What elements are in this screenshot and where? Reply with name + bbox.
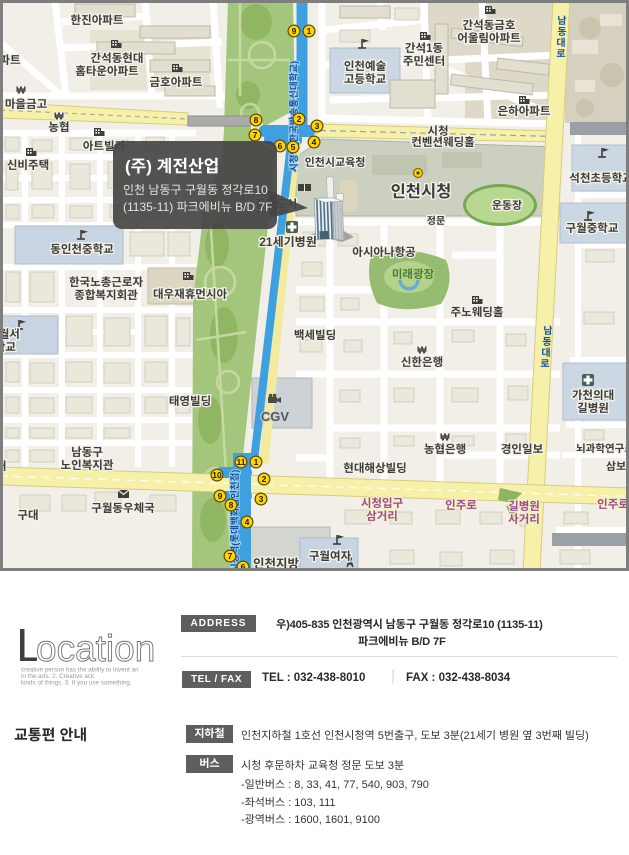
svg-text:9: 9: [292, 26, 297, 36]
svg-text:남동구: 남동구: [71, 446, 103, 459]
svg-text:2: 2: [297, 114, 302, 124]
svg-text:현대해상빌딩: 현대해상빌딩: [343, 462, 406, 475]
svg-text:1: 1: [254, 457, 259, 467]
svg-text:아시아나항공: 아시아나항공: [352, 246, 416, 259]
svg-text:1: 1: [307, 26, 312, 36]
svg-text:8: 8: [254, 115, 259, 125]
svg-text:미래광장: 미래광장: [392, 268, 435, 281]
svg-text:컨벤션웨딩홀: 컨벤션웨딩홀: [411, 136, 475, 149]
svg-text:대: 대: [556, 37, 565, 49]
svg-text:어울림아파트: 어울림아파트: [457, 32, 521, 45]
svg-text:신비주택: 신비주택: [7, 159, 49, 172]
svg-text:로: 로: [540, 359, 549, 370]
svg-text:대우재휴먼시아: 대우재휴먼시아: [153, 288, 227, 301]
svg-text:삼보: 삼보: [606, 460, 626, 473]
svg-text:인천예술: 인천예술: [344, 60, 387, 73]
svg-text:동인천중학교: 동인천중학교: [50, 243, 114, 256]
svg-text:길병원: 길병원: [577, 402, 609, 415]
svg-text:9: 9: [218, 491, 223, 501]
svg-text:4: 4: [245, 517, 250, 527]
svg-text:10: 10: [212, 470, 222, 480]
svg-text:삼거리: 삼거리: [366, 510, 398, 523]
svg-text:(1135-11) 파크에비뉴 B/D 7F: (1135-11) 파크에비뉴 B/D 7F: [123, 200, 272, 214]
svg-text:고등학교: 고등학교: [344, 73, 387, 86]
svg-text:주노웨딩홀: 주노웨딩홀: [451, 306, 504, 319]
svg-text:7: 7: [228, 551, 233, 561]
svg-text:11: 11: [237, 457, 246, 467]
svg-text:정문: 정문: [427, 215, 445, 227]
svg-text:간석동금호: 간석동금호: [463, 19, 516, 32]
svg-text:인주로: 인주로: [445, 499, 477, 512]
svg-text:ocation: ocation: [36, 628, 155, 669]
svg-text:간석1동: 간석1동: [405, 42, 444, 55]
svg-text:간석동현대: 간석동현대: [91, 52, 144, 65]
svg-text:한국노총근로자: 한국노총근로자: [69, 276, 143, 289]
svg-text:남: 남: [543, 325, 552, 337]
svg-text:가천의대: 가천의대: [572, 389, 614, 402]
svg-text:한진아파트: 한진아파트: [71, 14, 124, 27]
svg-text:kinds of things. 3. If you use: kinds of things. 3. If you use something…: [21, 680, 132, 687]
svg-text:인천 남동구 구월동 정각로10: 인천 남동구 구월동 정각로10: [123, 183, 268, 197]
svg-text:마을금고: 마을금고: [5, 98, 48, 111]
svg-text:농협은행: 농협은행: [424, 443, 466, 456]
svg-text:5: 5: [291, 142, 296, 152]
svg-text:6: 6: [278, 141, 283, 151]
svg-text:로: 로: [556, 49, 565, 60]
svg-text:구대: 구대: [17, 509, 38, 522]
svg-text:3: 3: [259, 494, 264, 504]
svg-text:3: 3: [315, 121, 320, 131]
svg-text:동: 동: [542, 337, 551, 348]
svg-text:대: 대: [541, 347, 550, 359]
svg-text:노인복지관: 노인복지관: [61, 459, 114, 472]
svg-text:동: 동: [557, 27, 566, 38]
svg-text:금호아파트: 금호아파트: [150, 76, 203, 89]
svg-text:주민센터: 주민센터: [403, 55, 445, 68]
svg-text:백세빌딩: 백세빌딩: [294, 329, 336, 342]
svg-text:파트: 파트: [0, 54, 21, 67]
svg-text:길병원: 길병원: [508, 500, 540, 513]
svg-text:농협: 농협: [48, 121, 69, 134]
svg-text:뇌과학연구소: 뇌과학연구소: [576, 443, 629, 455]
svg-text:인주로: 인주로: [597, 498, 629, 511]
svg-text:종합복지회관: 종합복지회관: [74, 289, 138, 302]
svg-text:(주) 계전산업: (주) 계전산업: [125, 157, 219, 176]
svg-text:구월여자: 구월여자: [309, 550, 352, 563]
svg-text:인천시교육청: 인천시교육청: [305, 156, 366, 169]
svg-text:인천시청: 인천시청: [391, 183, 452, 201]
svg-text:신한은행: 신한은행: [401, 356, 443, 369]
svg-text:운동장: 운동장: [492, 199, 522, 212]
svg-text:사거리: 사거리: [508, 513, 540, 526]
svg-text:석천초등학교: 석천초등학교: [569, 172, 629, 185]
svg-text:구월동우체국: 구월동우체국: [91, 502, 155, 515]
svg-text:홈타운아파트: 홈타운아파트: [75, 65, 139, 78]
svg-text:2: 2: [262, 474, 267, 484]
svg-text:4: 4: [312, 137, 317, 147]
svg-text:남: 남: [557, 15, 566, 27]
svg-text:시청입구: 시청입구: [361, 497, 404, 510]
svg-text:CGV: CGV: [261, 409, 290, 424]
svg-text:은하아파트: 은하아파트: [498, 105, 551, 118]
svg-text:구월중학교: 구월중학교: [566, 222, 619, 235]
svg-text:8: 8: [229, 500, 234, 510]
svg-text:21세기병원: 21세기병원: [259, 235, 317, 249]
svg-text:태영빌딩: 태영빌딩: [169, 395, 211, 408]
svg-text:7: 7: [253, 130, 258, 140]
svg-text:경인일보: 경인일보: [501, 443, 544, 456]
